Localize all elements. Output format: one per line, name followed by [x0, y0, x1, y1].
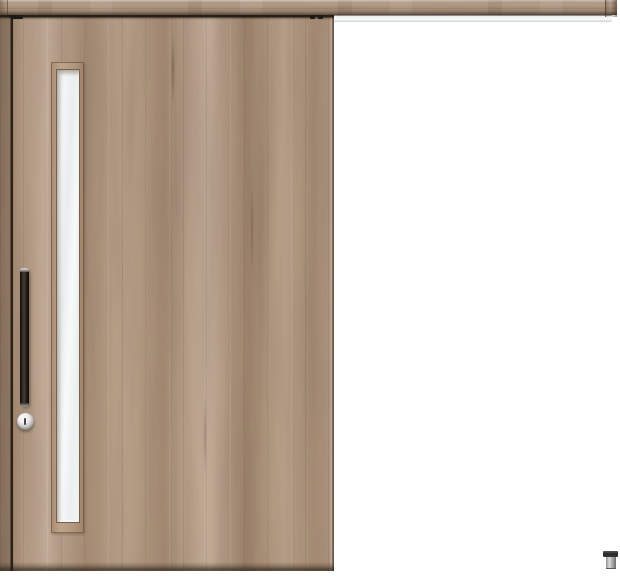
rail-woodgrain-overlay	[0, 0, 617, 15]
floor-guide-body	[606, 557, 616, 569]
thumb-turn-lock	[17, 413, 34, 430]
glass-panel	[56, 69, 80, 523]
rail-end-cap-left	[0, 0, 8, 17]
floor-guide	[603, 551, 618, 568]
product-image	[0, 0, 620, 576]
glass-panel-frame	[51, 62, 84, 533]
handle-bottom-cap	[20, 403, 29, 407]
rail-end-cap-right	[605, 0, 617, 17]
door-handle	[20, 268, 29, 407]
handle-top-cap	[20, 268, 29, 272]
sliding-door-panel	[0, 15, 334, 571]
top-rail	[0, 0, 617, 15]
lock-slot	[24, 418, 27, 425]
